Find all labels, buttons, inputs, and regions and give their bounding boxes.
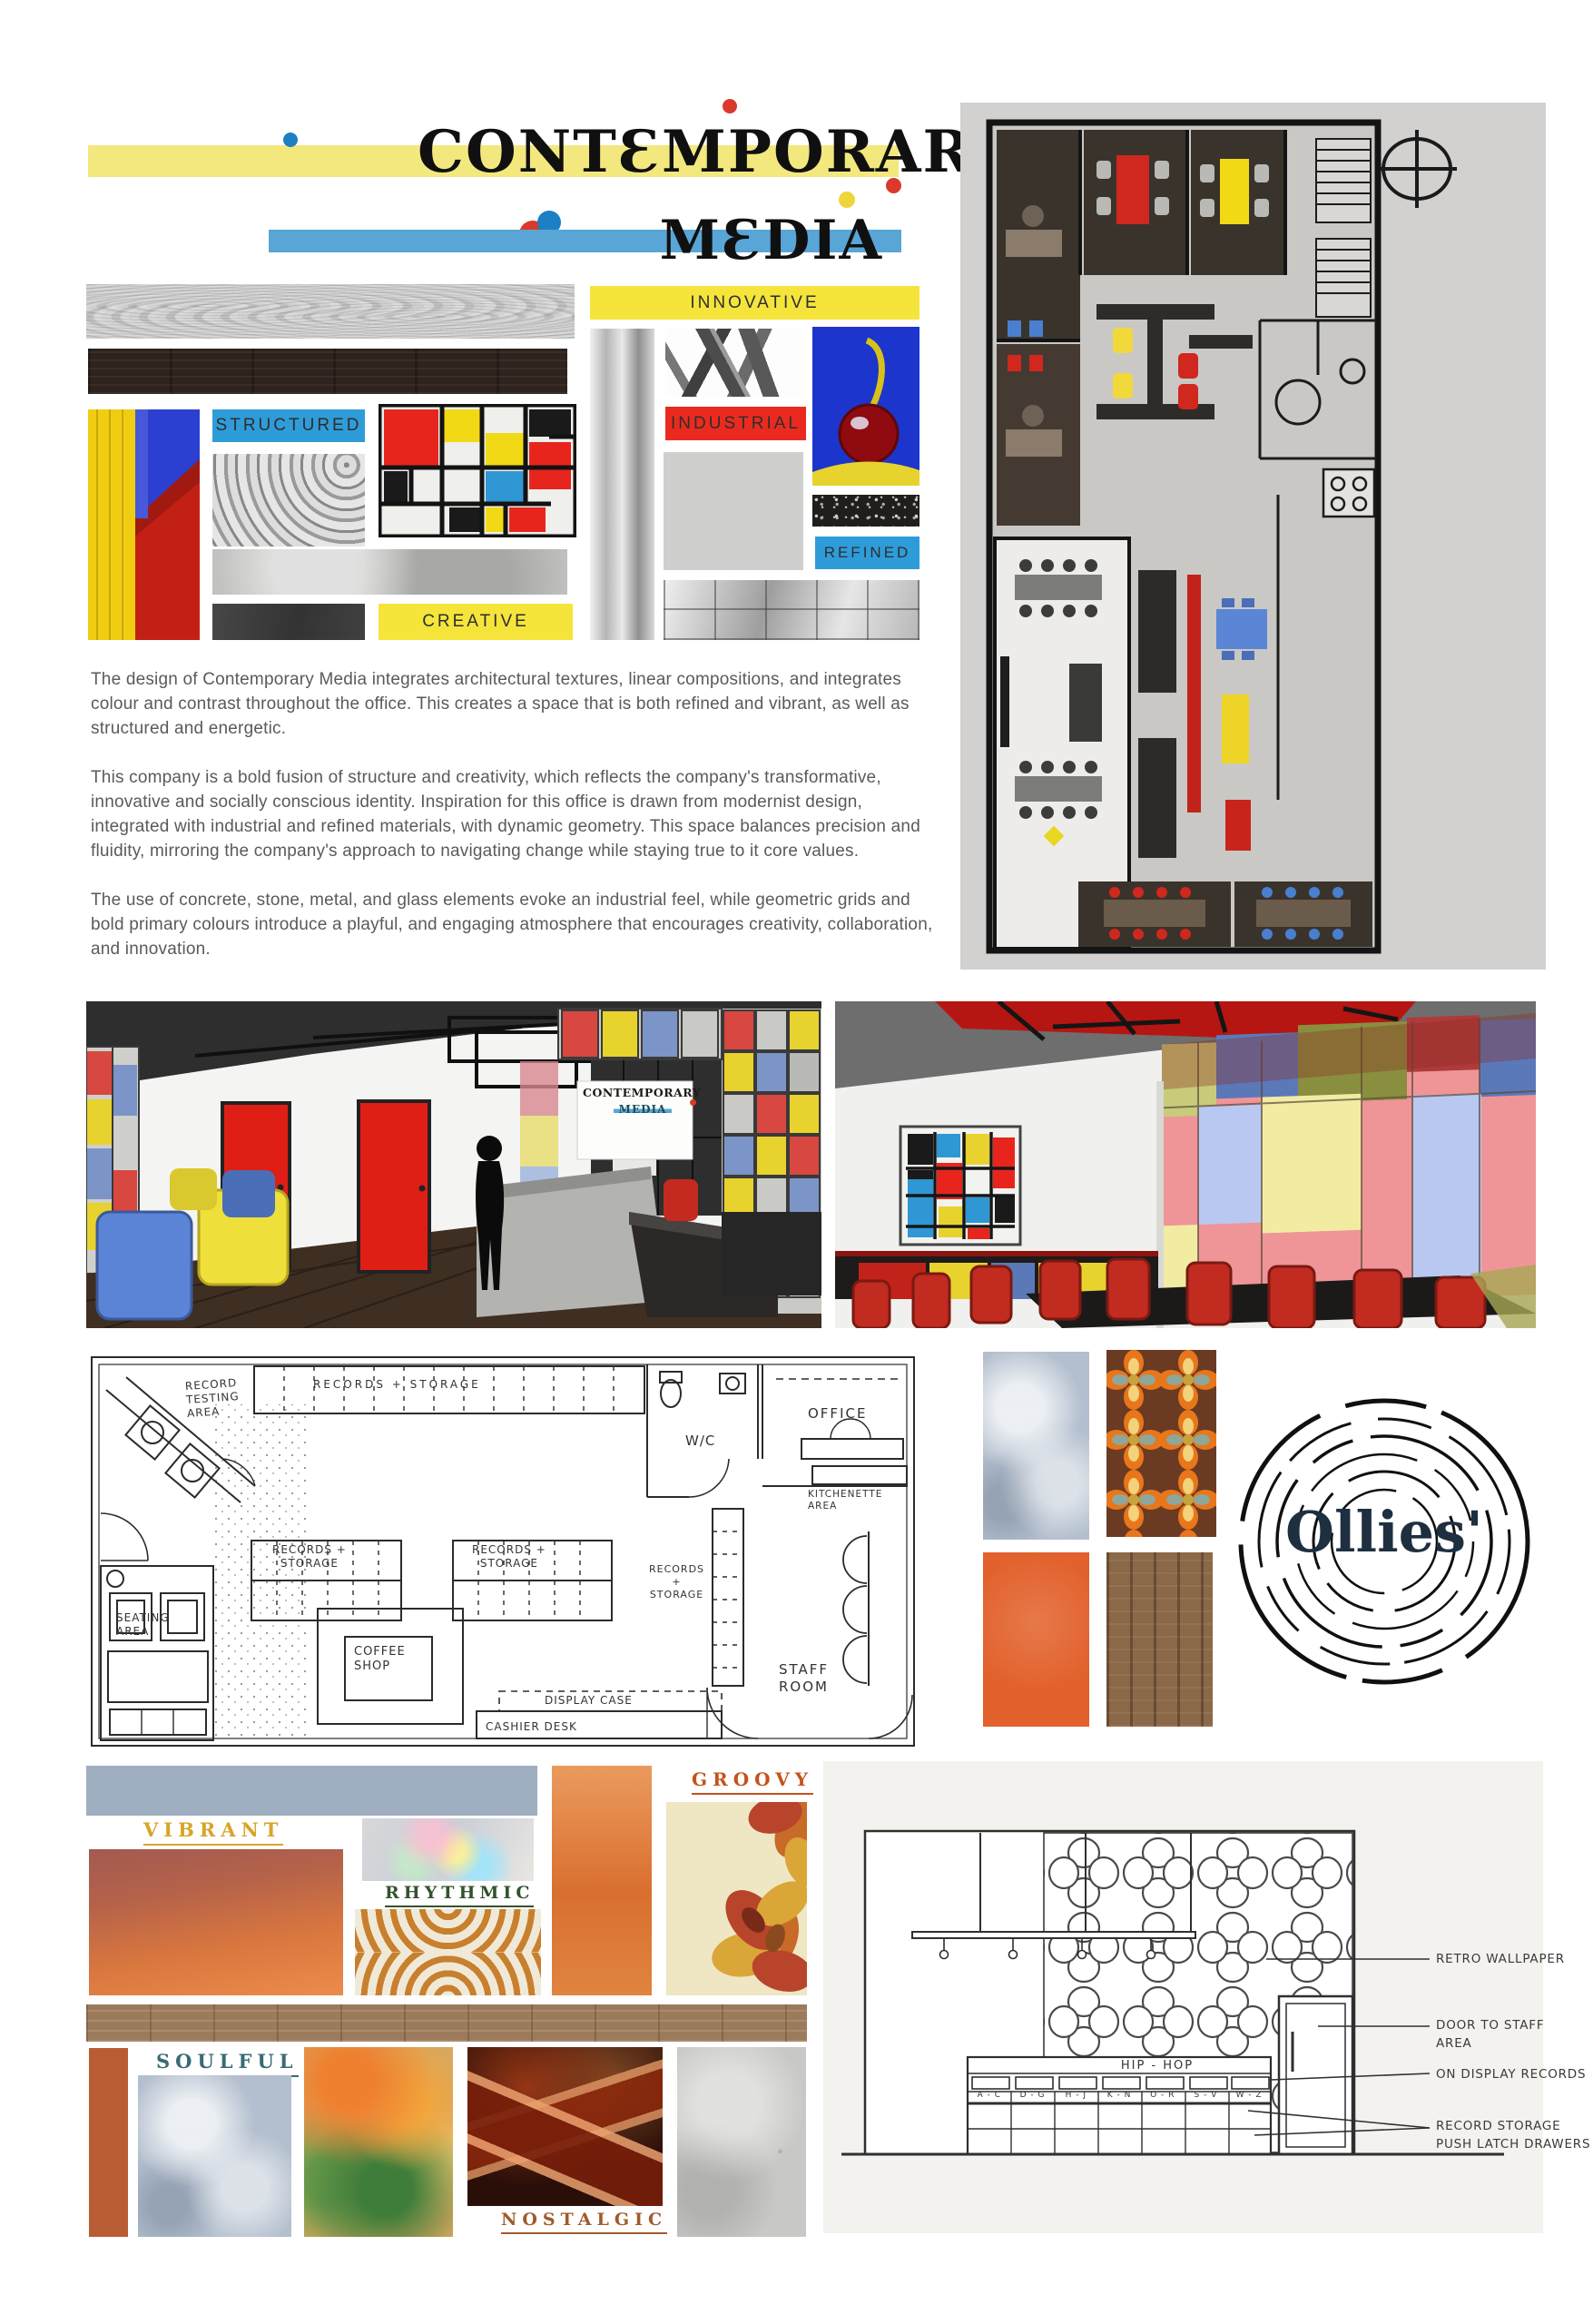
swatch-concrete-2 <box>677 2047 806 2237</box>
meeting-room-render <box>835 1001 1536 1328</box>
swatch-flower-blur <box>304 2047 453 2237</box>
plan-label-office: OFFICE <box>808 1405 867 1423</box>
swatch-sunset-gradient <box>89 1849 343 1995</box>
drawer-label: S - V <box>1185 2091 1228 2103</box>
swatch-wood-bar <box>86 2004 807 2042</box>
label-rhythmic: RHYTHMIC <box>385 1883 534 1907</box>
swatch-retro-wallpaper <box>666 1802 807 1995</box>
cherry-photo <box>812 327 919 486</box>
plan-label-staff-room: STAFF ROOM <box>779 1661 829 1696</box>
office-floor-plan <box>960 103 1546 970</box>
texture-tree-rings <box>212 454 365 547</box>
page-title: CONTƐMPORARY <box>418 118 899 183</box>
annotation-record-storage: RECORD STORAGE PUSH LATCH DRAWERS <box>1436 2118 1593 2153</box>
red-dot-icon <box>690 1099 696 1106</box>
label-industrial: INDUSTRIAL <box>665 407 806 440</box>
plan-label-display-case: DISPLAY CASE <box>545 1694 633 1708</box>
drawer-label: H - J <box>1054 2091 1097 2103</box>
mondrian-artwork <box>379 404 576 537</box>
annotation-display-records: ON DISPLAY RECORDS <box>1436 2066 1586 2084</box>
annotation-door-staff: DOOR TO STAFF AREA <box>1436 2017 1581 2053</box>
plan-label-island-left: RECORDS + STORAGE <box>272 1543 347 1571</box>
texture-silver-tiles <box>664 580 919 640</box>
paragraph-2: This company is a bold fusion of structu… <box>91 766 944 864</box>
render-sign: CONTEMPORARY MEDIA <box>583 1086 692 1117</box>
texture-granite <box>812 495 919 527</box>
swatch-blue-marble-2 <box>138 2075 291 2237</box>
texture-brushed-metal <box>590 329 654 640</box>
label-innovative: INNOVATIVE <box>590 286 919 320</box>
paragraph-1: The design of Contemporary Media integra… <box>91 668 944 742</box>
swatch-film-strips <box>467 2047 663 2206</box>
elevation-cabinet-title: HIP - HOP <box>1085 2059 1230 2073</box>
render-sign-line1: CONTEMPORARY <box>583 1086 692 1099</box>
swatch-rust-strip <box>89 2048 128 2237</box>
plan-label-records-vertical: RECORDS + STORAGE <box>649 1563 704 1600</box>
plan-label-top-shelf: RECORDS + STORAGE <box>313 1378 481 1392</box>
swatch-arches-pattern <box>355 1909 541 1995</box>
drawer-label: A - C <box>968 2091 1011 2103</box>
swatch-blue-marble <box>983 1352 1089 1540</box>
render-sign-line2: MEDIA <box>614 1103 673 1116</box>
drawer-label: W - Z <box>1227 2091 1271 2103</box>
swatch-orange-strip <box>552 1766 652 1995</box>
presentation-board: CONTƐMPORARY MƐDIA INNOVATIVE STRUCTURED <box>0 0 1593 2324</box>
page-subtitle: MƐDIA <box>635 209 883 269</box>
plan-label-seating: SEATING AREA <box>116 1611 170 1639</box>
swatch-blue-gray-bar <box>86 1766 537 1816</box>
drawer-label: K - N <box>1097 2091 1141 2103</box>
ollies-logo-text: Ollies' <box>1230 1499 1539 1565</box>
drawer-label: O - R <box>1141 2091 1185 2103</box>
plan-label-kitchenette: KITCHENETTE AREA <box>808 1489 882 1512</box>
drawer-label: D - G <box>1011 2091 1055 2103</box>
paragraph-3: The use of concrete, stone, metal, and g… <box>91 889 944 962</box>
texture-concrete <box>212 549 567 595</box>
plan-label-wc: W/C <box>685 1433 715 1450</box>
red-dot-icon <box>886 178 901 193</box>
texture-steel-beams <box>665 329 803 397</box>
annotation-retro-wallpaper: RETRO WALLPAPER <box>1436 1951 1565 1969</box>
label-soulful: SOULFUL <box>156 2050 299 2077</box>
plan-label-record-testing: RECORD TESTING AREA <box>185 1376 241 1421</box>
texture-dark-wood <box>88 349 567 394</box>
plan-label-island-right: RECORDS + STORAGE <box>472 1543 546 1571</box>
swatch-orange-leather <box>983 1552 1089 1727</box>
reception-render <box>86 1001 821 1328</box>
label-vibrant: VIBRANT <box>143 1818 283 1846</box>
plan-label-coffee-shop: COFFEE SHOP <box>354 1645 406 1675</box>
texture-glass-blocks <box>664 452 803 570</box>
ollies-logo: Ollies' <box>1230 1387 1539 1696</box>
elevation-drawer-labels: A - C D - G H - J K - N O - R S - V W - … <box>968 2091 1271 2103</box>
swatch-retro-pattern <box>1106 1350 1216 1537</box>
elevation-sketch <box>823 1761 1543 2233</box>
building-facade-photo <box>88 409 200 640</box>
texture-slate <box>212 604 365 640</box>
swatch-wood-planks <box>1106 1552 1213 1727</box>
blue-dot-icon <box>283 133 298 147</box>
texture-liquid-metal <box>86 284 575 339</box>
label-creative: CREATIVE <box>379 604 573 640</box>
yellow-dot-icon <box>839 192 855 208</box>
label-nostalgic: NOSTALGIC <box>501 2210 667 2234</box>
body-text: The design of Contemporary Media integra… <box>91 668 944 987</box>
label-structured: STRUCTURED <box>212 409 365 442</box>
red-dot-icon <box>723 99 737 113</box>
plan-label-cashier-desk: CASHIER DESK <box>486 1720 577 1734</box>
label-refined: REFINED <box>815 537 919 569</box>
swatch-holographic <box>362 1818 534 1881</box>
label-groovy: GROOVY <box>692 1768 813 1795</box>
